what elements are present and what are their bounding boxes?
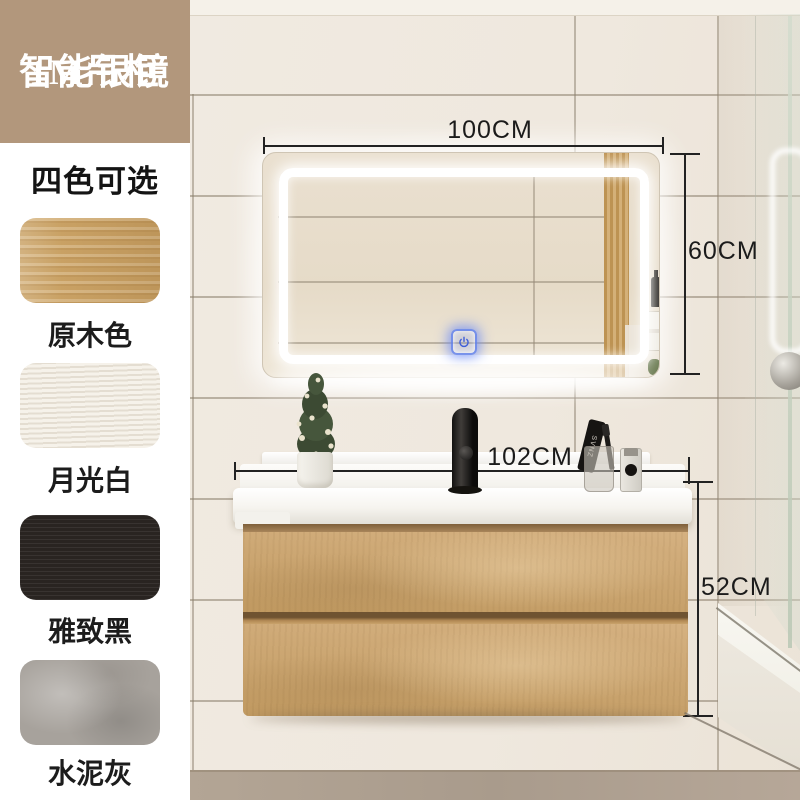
tile-grout-line: [190, 94, 800, 96]
color-options-heading: 四色可选: [0, 156, 190, 201]
faucet-base: [448, 486, 482, 494]
swatch-moonlight-white-label: 月光白: [20, 459, 160, 499]
dimension-tick: [670, 153, 700, 155]
swatch-cement-gray[interactable]: [20, 660, 160, 745]
dimension-label-mirror-width: 100CM: [420, 116, 560, 145]
dimension-label-mirror-height: 60CM: [688, 237, 759, 266]
mirror-plant-reflection: [648, 359, 660, 375]
dimension-tick: [688, 457, 690, 484]
dimension-line-mirror-height: [684, 153, 686, 375]
faucet-knob: [459, 446, 473, 460]
plant-pot: [297, 452, 333, 488]
drawer-bottom: [243, 624, 688, 716]
power-icon: [457, 335, 471, 349]
chrome-fixture: [770, 352, 800, 390]
tile-grout-line: [192, 94, 194, 772]
dimension-line-vanity-height: [697, 481, 699, 717]
glass-edge: [755, 16, 756, 616]
mirror-bottle-reflection: [651, 277, 660, 307]
swatch-natural-wood[interactable]: [20, 218, 160, 303]
swatch-moonlight-white[interactable]: [20, 363, 160, 448]
cabinet-top-reveal: [243, 524, 688, 532]
vanity-cabinet: [243, 524, 688, 716]
potted-plant: [278, 368, 354, 464]
product-image: 1M吊柜 智能银镜 四色可选 原木色 月光白 雅致黑 水泥灰: [0, 0, 800, 800]
options-sidebar: 1M吊柜 智能银镜 四色可选 原木色 月光白 雅致黑 水泥灰: [0, 0, 190, 800]
bathtub-corner: [715, 555, 800, 790]
product-badge: 1M吊柜 智能银镜: [0, 0, 190, 143]
badge-line-2: 智能银镜: [19, 51, 171, 93]
led-smart-mirror: [262, 152, 660, 378]
perfume-label: [625, 464, 637, 476]
drawer-gap: [243, 612, 688, 624]
dimension-tick: [263, 137, 265, 154]
drawer-top: [243, 532, 688, 612]
dimension-tick: [670, 373, 700, 375]
ceiling: [190, 0, 800, 16]
dimension-line-mirror-width: [264, 145, 664, 147]
dimension-tick: [662, 137, 664, 154]
cabinet-shadow: [250, 713, 685, 723]
swatch-elegant-black-label: 雅致黑: [20, 610, 160, 650]
toothbrush-cup: [584, 446, 614, 492]
swatch-cement-gray-label: 水泥灰: [20, 752, 160, 792]
dimension-tick: [683, 481, 713, 483]
dimension-tick: [234, 462, 236, 480]
power-button[interactable]: [451, 329, 477, 355]
wall-light-reflection: [770, 148, 800, 354]
bathroom-scene: 100CM 60CM 102CM 52CM SVNZ: [190, 0, 800, 800]
perfume-cap: [624, 448, 638, 456]
swatch-natural-wood-label: 原木色: [20, 314, 160, 354]
floor: [190, 770, 800, 800]
swatch-elegant-black[interactable]: [20, 515, 160, 600]
